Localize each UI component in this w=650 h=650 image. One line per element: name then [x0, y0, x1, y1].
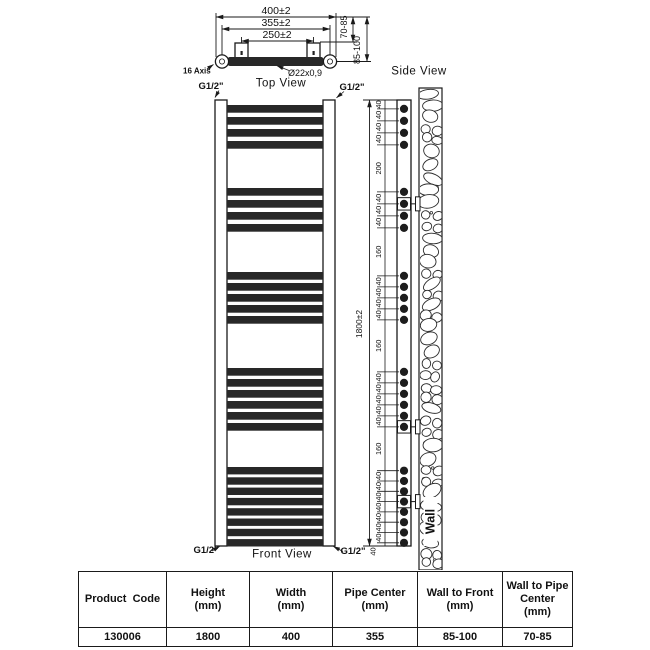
dim-chain-label: 40 — [374, 277, 383, 285]
rung-dot — [400, 518, 408, 526]
table-header-line: Width — [250, 587, 332, 600]
table-header-line: (mm) — [333, 600, 417, 613]
dim-chain-label: 40 — [374, 206, 383, 214]
wall-stone — [418, 184, 438, 196]
top-view: 400±2 355±2 250±2 70-85 85-100 — [183, 5, 371, 90]
wall-pebble — [430, 211, 433, 214]
rung-dot — [400, 117, 408, 125]
fitting-label-bottom-left: G1/2" — [193, 545, 218, 556]
front-rail-right — [323, 100, 335, 546]
tube-diameter-label: Ø22x0,9 — [288, 68, 322, 78]
dim-chain-label: 40 — [374, 111, 383, 119]
table-data-cell: 130006 — [79, 628, 167, 647]
rung-bar — [227, 200, 323, 208]
rung-bar — [227, 129, 323, 137]
rung-dot — [400, 390, 408, 398]
rung-dot — [400, 200, 408, 208]
table-header-cell: Width(mm) — [250, 572, 333, 628]
table-data-cell: 355 — [333, 628, 418, 647]
bracket-wall-plate — [416, 197, 421, 211]
rung-bar — [227, 390, 323, 398]
rung-bar — [227, 488, 323, 495]
table-header-cell: Height(mm) — [167, 572, 250, 628]
wall-stone — [421, 466, 431, 475]
rung-bar — [227, 117, 323, 125]
rung-bar — [227, 141, 323, 149]
table-data-cell: 85-100 — [418, 628, 503, 647]
dim-chain-label: 40 — [374, 503, 383, 511]
rung-bar — [227, 529, 323, 536]
wall-label: Wall — [424, 509, 438, 534]
rung-dot — [400, 305, 408, 313]
dim-chain-label: 40 — [374, 384, 383, 392]
dim-chain-label: 40 — [374, 299, 383, 307]
dim-chain-label: 40 — [374, 523, 383, 531]
bracket-wall-plate — [416, 420, 421, 434]
rung-dot — [400, 224, 408, 232]
dim-chain-label: 40 — [374, 218, 383, 226]
rung-bar — [227, 467, 323, 474]
rung-dot — [400, 294, 408, 302]
side-view-title: Side View — [391, 66, 447, 78]
dim-chain-label: 40 — [374, 100, 383, 108]
dim-label-width: 400±2 — [261, 5, 290, 17]
rung-bar — [227, 272, 323, 280]
rung-bar — [227, 105, 323, 113]
rung-bar — [227, 519, 323, 526]
pipe-fitting-left — [215, 55, 228, 68]
dim-chain-label: 40 — [374, 534, 383, 542]
rung-bar — [227, 508, 323, 515]
rung-dot — [400, 528, 408, 536]
dim-chain-label: 40 — [374, 482, 383, 490]
rung-bar — [227, 224, 323, 232]
rung-bar — [227, 305, 323, 313]
dim-chain-label: 160 — [374, 340, 383, 352]
wall-stone — [421, 125, 430, 134]
rung-dot — [400, 539, 408, 547]
front-view-title: Front View — [252, 549, 312, 561]
dim-chain-label: 200 — [374, 162, 383, 174]
dim-label-bracket-center: 250±2 — [262, 29, 291, 41]
fitting-label-bottom-right: G1/2" — [340, 546, 365, 557]
table-header-line: (mm) — [418, 600, 502, 613]
table-header-line: Product Code — [79, 593, 166, 606]
bracket-pin-right — [313, 51, 315, 55]
rung-bar — [227, 316, 323, 324]
table-data-cell: 1800 — [167, 628, 250, 647]
wall-stone — [431, 386, 442, 395]
dim-chain-label: 40 — [374, 194, 383, 202]
front-view: G1/2" G1/2" G1/2" G1/2" Front View — [193, 81, 365, 561]
dim-label-pipe-center: 355±2 — [261, 17, 290, 29]
rung-bar — [227, 379, 323, 387]
rung-dot — [400, 487, 408, 495]
pipe-fitting-right — [323, 55, 336, 68]
rung-dot — [400, 129, 408, 137]
front-view-rungs — [227, 105, 323, 547]
axis-label: 16 Axis — [183, 67, 211, 76]
wall-bracket-right — [307, 43, 320, 58]
table-header-line: Pipe Center — [333, 587, 417, 600]
dim-chain-label: 40 — [374, 373, 383, 381]
rung-bar — [227, 498, 323, 505]
dim-chain-label: 40 — [374, 395, 383, 403]
dim-chain-label: 160 — [374, 246, 383, 258]
dim-label-height: 1800±2 — [354, 310, 364, 339]
table-header-line: Height — [167, 587, 249, 600]
rung-dot — [400, 283, 408, 291]
dim-chain-label: 40 — [374, 492, 383, 500]
rung-bar — [227, 188, 323, 196]
table-header-line: (mm) — [250, 600, 332, 613]
dim-chain-label: 40 — [374, 406, 383, 414]
dim-chain-label: 40 — [374, 135, 383, 143]
rung-dot — [400, 401, 408, 409]
table-header-row: Product CodeHeight(mm)Width(mm)Pipe Cent… — [79, 572, 573, 628]
dim-chain-label: 40 — [374, 417, 383, 425]
rung-dot — [400, 141, 408, 149]
table-data-cell: 70-85 — [503, 628, 573, 647]
front-rail-left — [215, 100, 227, 546]
rung-dot — [400, 272, 408, 280]
fitting-label-top-right: G1/2" — [339, 82, 364, 93]
rung-dot — [400, 379, 408, 387]
dim-chain-label: 40 — [374, 310, 383, 318]
rung-dot — [400, 368, 408, 376]
radiator-spec-sheet: 400±2 355±2 250±2 70-85 85-100 — [0, 0, 650, 650]
table-header-cell: Wall to PipeCenter(mm) — [503, 572, 573, 628]
dim-label-wall-to-pipe: 70-85 — [339, 15, 349, 38]
rung-dot — [400, 188, 408, 196]
rung-bar — [227, 477, 323, 484]
table-header-cell: Pipe Center(mm) — [333, 572, 418, 628]
rung-dot — [400, 498, 408, 506]
rung-bar — [227, 212, 323, 220]
bracket-wall-plate — [416, 495, 421, 509]
rung-dot — [400, 212, 408, 220]
table-data-row: 130006180040035585-10070-85 — [79, 628, 573, 647]
rung-dot — [400, 508, 408, 516]
rung-bar — [227, 412, 323, 420]
dim-chain-label: 40 — [369, 547, 378, 555]
rung-dot — [400, 477, 408, 485]
table-header-line: Wall to Front — [418, 587, 502, 600]
rung-bar — [227, 368, 323, 376]
wall-stone — [420, 370, 432, 379]
dim-label-wall-to-front: 85-100 — [352, 36, 362, 64]
wall-stone — [422, 358, 431, 368]
dim-chain-label: 40 — [374, 123, 383, 131]
fitting-label-top-left: G1/2" — [198, 81, 223, 92]
rung-dot — [400, 423, 408, 431]
table-header-cell: Product Code — [79, 572, 167, 628]
top-view-title: Top View — [256, 78, 307, 90]
rung-dot — [400, 105, 408, 113]
rung-bar — [227, 401, 323, 409]
dim-chain-label: 40 — [374, 472, 383, 480]
rung-bar — [227, 539, 323, 546]
table-data-cell: 400 — [250, 628, 333, 647]
bracket-pin-left — [241, 51, 243, 55]
rung-bar — [227, 423, 323, 431]
table-header-line: (mm) — [503, 606, 572, 619]
table-header-line: (mm) — [167, 600, 249, 613]
table-header-cell: Wall to Front(mm) — [418, 572, 503, 628]
dim-bracket-centers: 250±2 — [242, 29, 314, 44]
dim-chain-label: 40 — [374, 288, 383, 296]
table-header-line: Wall to Pipe — [503, 580, 572, 593]
technical-diagram: 400±2 355±2 250±2 70-85 85-100 — [0, 0, 650, 570]
dim-chain-label: 40 — [374, 513, 383, 521]
rung-bar — [227, 294, 323, 302]
spec-table-grid: Product CodeHeight(mm)Width(mm)Pipe Cent… — [78, 571, 573, 647]
dim-chain: 4040404020040404016040404040160404040404… — [369, 100, 400, 556]
table-header-line: Center — [503, 593, 572, 606]
rung-bar — [227, 283, 323, 291]
side-view: Side View 1800±2 40404040200404040160404… — [354, 66, 447, 571]
spec-table: Product CodeHeight(mm)Width(mm)Pipe Cent… — [78, 571, 572, 647]
rung-dot — [400, 316, 408, 324]
wall-stone — [433, 361, 442, 370]
wall-bracket-left — [235, 43, 248, 58]
dim-chain-label: 160 — [374, 443, 383, 455]
rung-dot — [400, 412, 408, 420]
tube-top-view — [228, 58, 323, 66]
rung-dot — [400, 467, 408, 475]
